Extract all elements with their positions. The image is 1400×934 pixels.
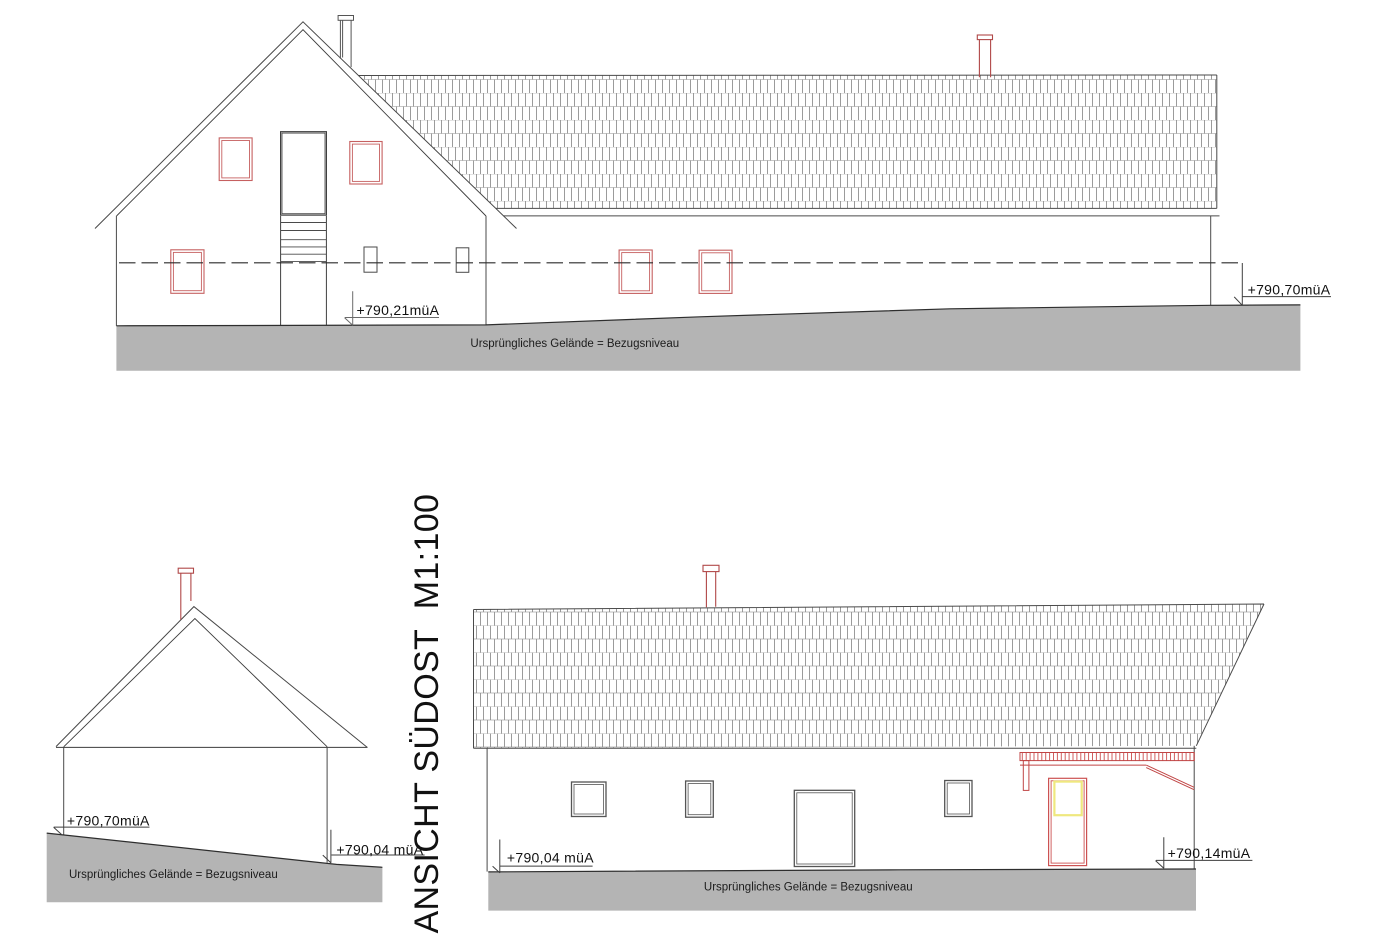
svg-text:+790,70müA: +790,70müA xyxy=(1248,281,1331,297)
svg-text:Ursprüngliches Gelände = Bezug: Ursprüngliches Gelände = Bezugsniveau xyxy=(470,338,679,350)
svg-text:ANSICHT SÜDOST M1:100: ANSICHT SÜDOST M1:100 xyxy=(408,494,446,934)
svg-text:+790,04 müA: +790,04 müA xyxy=(507,850,594,866)
svg-text:+790,70müA: +790,70müA xyxy=(67,812,150,828)
svg-text:+790,21müA: +790,21müA xyxy=(357,302,440,318)
svg-text:Ursprüngliches Gelände = Bezug: Ursprüngliches Gelände = Bezugsniveau xyxy=(69,869,278,881)
svg-text:+790,14müA: +790,14müA xyxy=(1168,845,1251,861)
svg-text:Ursprüngliches Gelände = Bezug: Ursprüngliches Gelände = Bezugsniveau xyxy=(704,882,913,894)
